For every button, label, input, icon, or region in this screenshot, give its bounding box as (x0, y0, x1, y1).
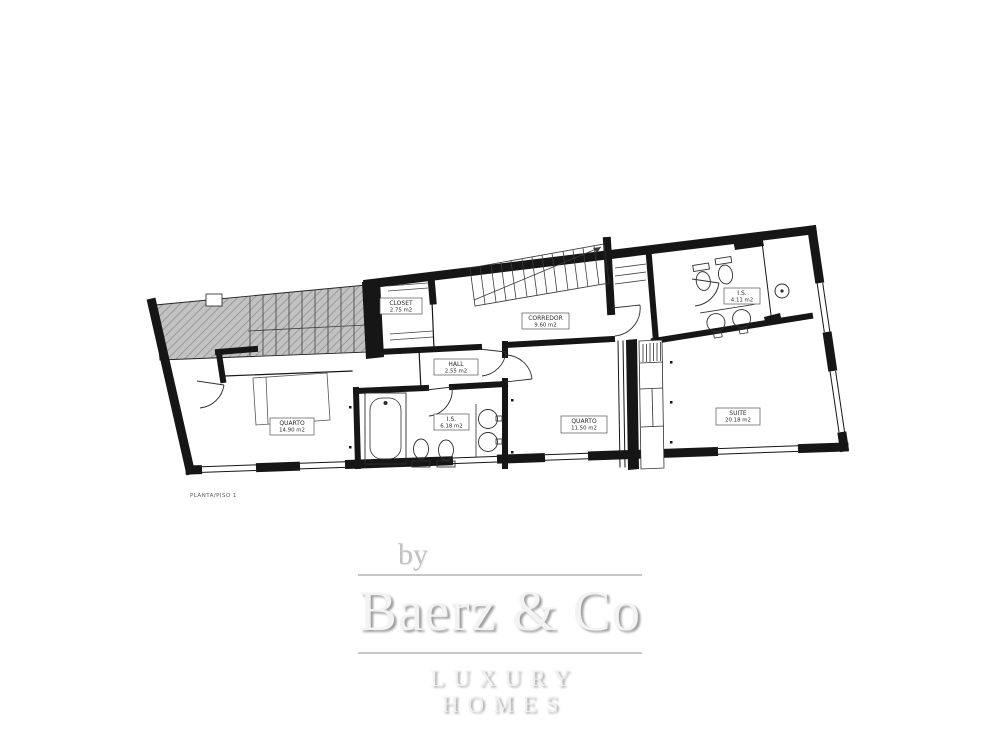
room-name: CLOSET (389, 300, 413, 307)
stairwell-hatch (155, 285, 370, 360)
room-area: 9.60 m2 (534, 323, 556, 329)
door-arc (612, 305, 640, 336)
door-arc (692, 279, 719, 306)
page: CLOSET 2.75 m2 CORREDOR 9.60 m2 HALL 2.5… (0, 0, 1000, 750)
door-arc (479, 349, 506, 376)
room-area: 6.18 m2 (440, 424, 462, 430)
room-label-is-1: I.S. 6.18 m2 (434, 414, 469, 430)
room-name: HALL (448, 361, 464, 368)
door-arc (505, 355, 532, 382)
room-area: 14.90 m2 (279, 428, 305, 434)
bed (253, 373, 330, 425)
window (300, 462, 345, 469)
room-name: CORREDOR (528, 315, 563, 322)
room-area: 2.75 m2 (390, 308, 412, 314)
watermark-logo: by Baerz & Co LUXURY HOMES (358, 540, 642, 718)
watermark-brand: Baerz & Co (358, 576, 642, 652)
bidet (715, 256, 735, 285)
room-label-suite: SUITE 20.18 m2 (716, 408, 760, 425)
room-name: I.S. (737, 290, 746, 297)
watermark-tagline: LUXURY HOMES (358, 654, 642, 718)
room-area: 2.55 m2 (445, 369, 467, 375)
room-name: QUARTO (571, 418, 597, 425)
plan-caption: PLANTA/PISO 1 (190, 493, 237, 499)
stair-notch (206, 294, 222, 306)
toilet (693, 263, 713, 292)
bathtub (365, 393, 406, 464)
room-area: 20.18 m2 (725, 418, 751, 424)
room-label-corredor: CORREDOR 9.60 m2 (522, 313, 569, 329)
window (830, 371, 845, 432)
shower-drain (775, 284, 789, 298)
window (202, 465, 256, 473)
door-arc (197, 381, 224, 408)
room-area: 4.11 m2 (731, 298, 753, 304)
room-name: I.S. (447, 416, 456, 423)
door-arc (426, 387, 452, 416)
room-label-closet: CLOSET 2.75 m2 (380, 298, 422, 314)
window (718, 446, 798, 454)
wardrobe (639, 340, 664, 469)
room-label-quarto-1: QUARTO 14.90 m2 (270, 418, 314, 435)
room-name: SUITE (729, 410, 747, 417)
window (545, 453, 588, 460)
room-label-is-2: I.S. 4.11 m2 (724, 288, 760, 304)
room-label-hall: HALL 2.55 m2 (434, 359, 478, 375)
passage-steps (615, 264, 646, 284)
watermark-by: by (398, 540, 642, 570)
window (817, 283, 830, 332)
room-area: 11.50 m2 (571, 426, 597, 432)
sink (476, 404, 502, 457)
room-name: QUARTO (279, 420, 305, 427)
room-label-quarto-2: QUARTO 11.50 m2 (561, 416, 607, 433)
window (453, 456, 497, 463)
